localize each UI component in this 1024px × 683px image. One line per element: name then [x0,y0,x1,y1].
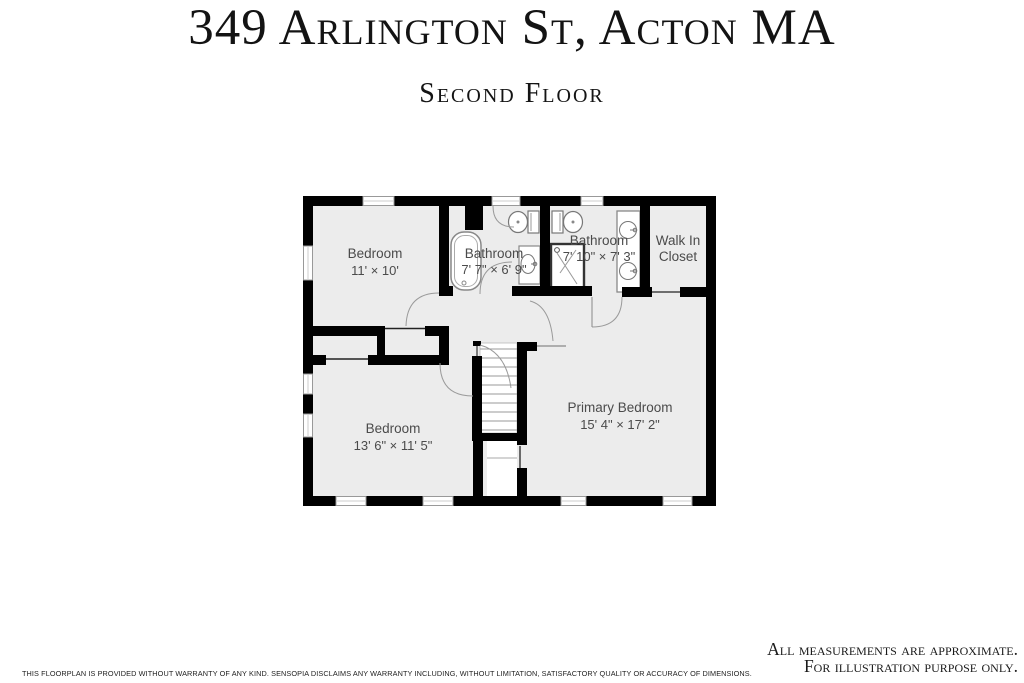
wall-closet-west [640,206,650,291]
toilet [552,211,583,233]
room-name: Primary Bedroom [567,400,672,415]
bathtub [451,232,481,290]
wall-bedroom1-east [439,206,449,293]
room-dimensions: 13' 6" × 11' 5" [354,438,433,453]
room-dimensions: 11' × 10' [351,263,399,278]
wall-understair-east [517,468,527,497]
wall-bathroom2-south [550,286,592,296]
room-name: Bathroom [465,246,524,261]
wall-stair-bottom [472,433,527,441]
wall-closet-south [680,287,706,297]
wall-closetrow-divider [377,336,385,355]
floorplan-page: 349 Arlington St, Acton MA Second Floor [0,0,1024,683]
floorplan-drawing: Bedroom 11' × 10' Bathroom 7' 7" × 6' 9"… [296,186,726,516]
wall-closetrow-east [439,326,449,365]
room-label-bathroom-2: Bathroom 7' 10" × 7' 3" [563,233,636,264]
wall-tub-nook [465,205,483,230]
room-label-walk-in-closet: Walk In Closet [656,233,701,264]
wall-stair-east [517,342,527,445]
room-name: Bedroom [366,421,421,436]
room-name: Bedroom [348,246,403,261]
page-title: 349 Arlington St, Acton MA [0,0,1024,56]
under-stair-closet-floor [487,441,517,497]
wall-exterior-left [303,196,313,506]
room-name: Walk In [656,233,701,248]
measurement-note-line2: For illustration purpose only. [767,658,1018,675]
floor-subtitle: Second Floor [0,78,1024,110]
room-dimensions: 7' 10" × 7' 3" [563,249,636,264]
room-label-bathroom-1: Bathroom 7' 7" × 6' 9" [461,246,527,277]
measurement-note: All measurements are approximate. For il… [767,641,1018,675]
room-dimensions: 7' 7" × 6' 9" [461,262,527,277]
room-name: Closet [659,249,698,264]
wall-understair-west [473,441,483,497]
stair-newel-post [473,341,481,346]
room-dimensions: 15' 4" × 17' 2" [580,417,660,432]
wall-exterior-right [706,196,716,506]
room-name: Bathroom [570,233,629,248]
wall-closetrow-bottom-right [368,355,449,365]
warranty-disclaimer: THIS FLOORPLAN IS PROVIDED WITHOUT WARRA… [22,669,752,678]
wall-stair-west [472,356,482,441]
wall-bathrooms-divider [540,206,550,296]
wall-closetrow-top-left [313,326,385,336]
wall-closetrow-bottom-left [313,355,326,365]
wall-bathroom1-south-left [439,286,453,296]
wall-stair-top [517,342,537,351]
toilet [509,211,540,233]
